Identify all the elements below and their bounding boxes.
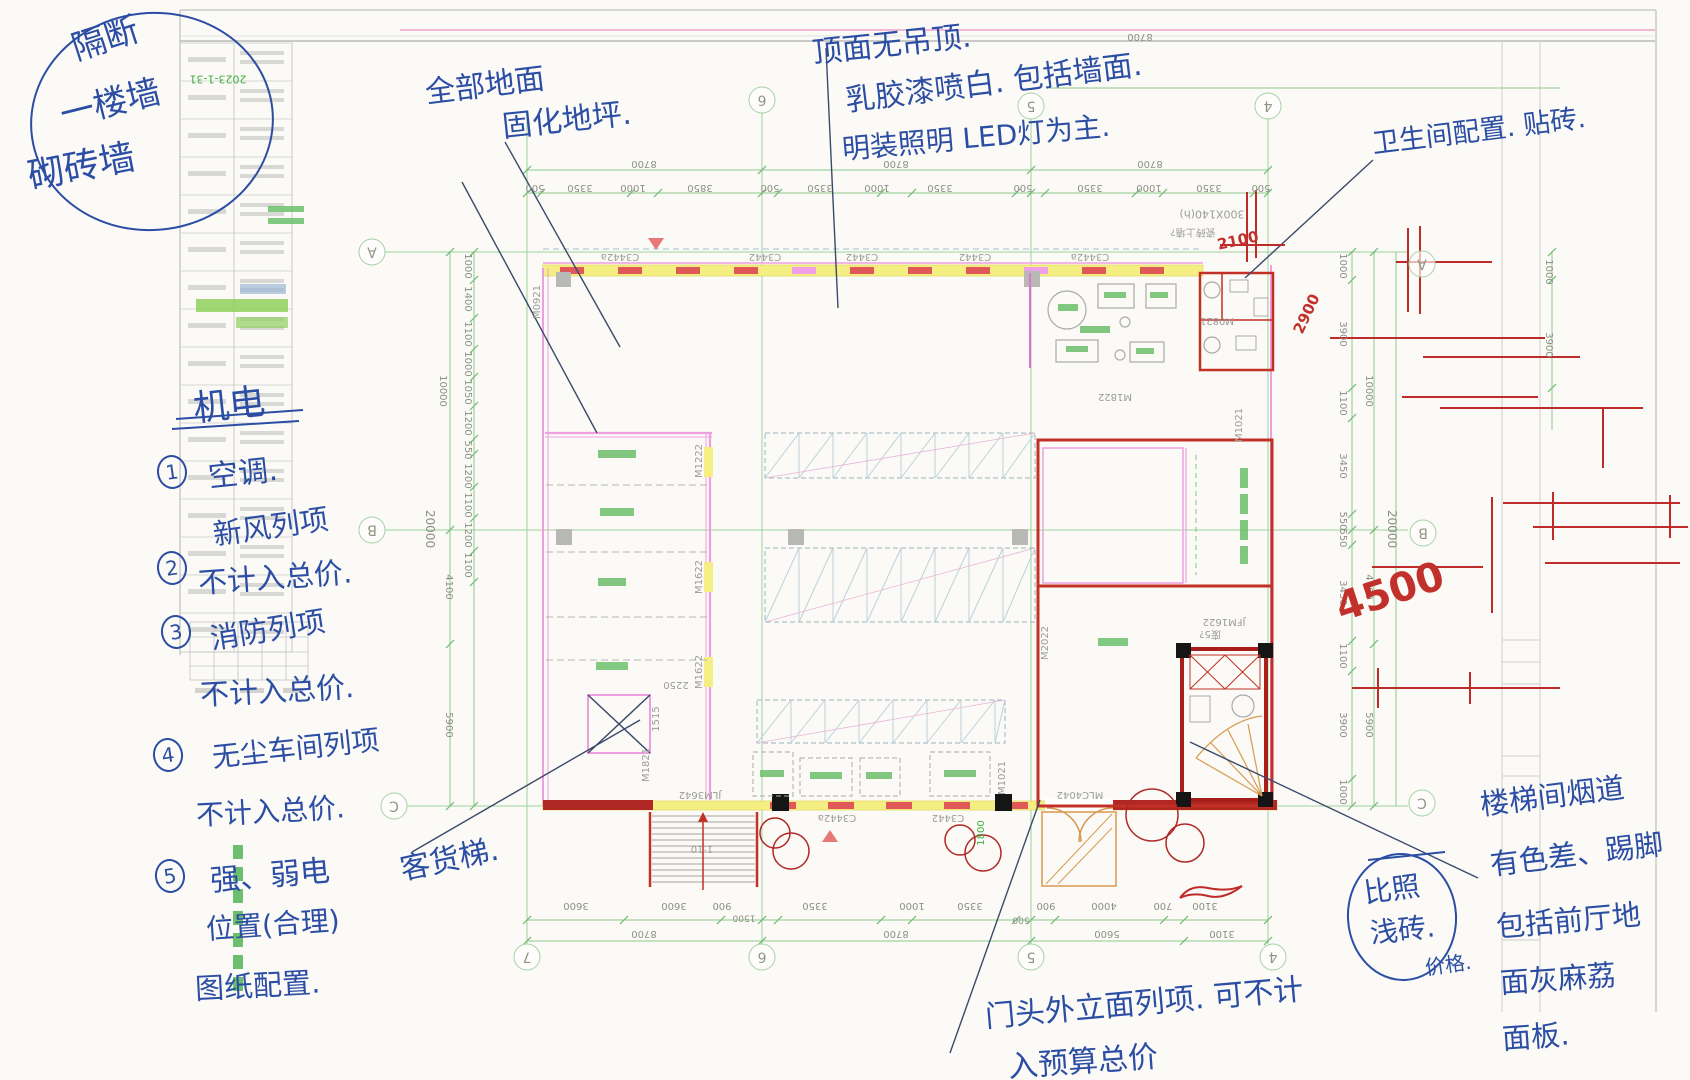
dimension-label: 3850 xyxy=(687,182,712,192)
dimension-label: 3350 xyxy=(567,182,592,192)
dimension-label: 1050 xyxy=(462,379,472,404)
dimension-label: 1000 xyxy=(1543,259,1553,284)
dimension-label: 700 xyxy=(1153,900,1172,910)
cad-label: M1822 xyxy=(1098,391,1132,401)
cad-label: M0921 xyxy=(533,285,543,319)
cad-label: C3442a xyxy=(1071,251,1110,261)
cad-label: MLC4042 xyxy=(1057,789,1104,799)
grid-bubble: 4 xyxy=(1260,944,1287,971)
compare-note-line2: 浅砖. xyxy=(1368,905,1437,952)
dimension-label: 3600 xyxy=(661,900,686,910)
scanned-floor-plan-sheet: 隔断 一楼墙 砌砖墙 全部地面 固化地坪. 顶面无吊顶. 乳胶漆喷白. 包括墙面… xyxy=(0,0,1690,1080)
cad-green-label: 1800 xyxy=(977,820,987,845)
dimension-label: 1100 xyxy=(462,321,472,346)
cad-label: C3442a xyxy=(818,812,857,822)
dimension-label: 1000 xyxy=(1337,253,1347,278)
grid-bubble: C xyxy=(1409,790,1436,817)
cad-label: 2250 xyxy=(663,679,688,689)
grid-bubble: 6 xyxy=(749,944,776,971)
dimension-label: 1000 xyxy=(462,253,472,278)
grid-bubble: B xyxy=(1410,520,1437,547)
dimension-label: 4100 xyxy=(443,574,453,599)
dimension-label: 3350 xyxy=(807,182,832,192)
mech-item1-text: 空调. xyxy=(206,445,280,496)
mech-title: 机电 xyxy=(190,373,267,432)
dimension-label: 3100 xyxy=(1209,928,1234,938)
dimension-label: 8700 xyxy=(1137,158,1162,168)
dimension-label: 1000 xyxy=(462,351,472,376)
dimension-label: 20000 xyxy=(1386,510,1398,548)
cad-label: M1021 xyxy=(998,761,1008,795)
dimension-label: 1000 xyxy=(1136,182,1161,192)
cad-label: 1515 xyxy=(652,706,662,731)
dimension-label: 1200 xyxy=(462,410,472,435)
dimension-label: 3350 xyxy=(802,900,827,910)
grid-bubble: 7 xyxy=(514,944,541,971)
dimension-label: 3450 xyxy=(1337,453,1347,478)
mech-item5-text3: 图纸配置. xyxy=(194,959,321,1007)
dimension-label: 5900 xyxy=(1363,712,1373,737)
cad-label: M1821 xyxy=(642,748,652,782)
dimension-label: 1100 xyxy=(1337,390,1347,415)
dimension-label: 1200 xyxy=(462,522,472,547)
dimension-label: 1000 xyxy=(620,182,645,192)
dimension-label: 3900 xyxy=(1543,332,1553,357)
grid-bubble: C xyxy=(381,793,408,820)
dimension-label: 1200 xyxy=(462,463,472,488)
cad-label: 1:10 xyxy=(691,843,713,853)
dimension-label: 500 xyxy=(760,182,779,192)
cad-label: C3442 xyxy=(846,251,878,261)
grid-bubble: A xyxy=(1409,251,1436,278)
dimension-label: 1400 xyxy=(462,286,472,311)
dimension-label: 4000 xyxy=(1091,900,1116,910)
grid-bubble: 5 xyxy=(1018,93,1045,120)
dimension-label: 20000 xyxy=(424,510,436,548)
dimension-label: 550 xyxy=(462,440,472,459)
stairwell-note-line5: 面板. xyxy=(1501,1011,1571,1058)
dimension-label: 550 xyxy=(1337,528,1347,547)
cad-label: 瓷砖上墙? xyxy=(1170,226,1215,236)
grid-bubble: 5 xyxy=(1018,944,1045,971)
grid-bubble: A xyxy=(359,239,386,266)
cad-label: JLM3642 xyxy=(679,789,722,799)
mech-item3-text2: 不计入总价. xyxy=(199,664,355,714)
dimension-label: 900 xyxy=(1036,900,1055,910)
dimension-label: 3350 xyxy=(957,900,982,910)
cad-label: JFM1622 xyxy=(1203,616,1246,626)
cad-label: C3442 xyxy=(959,251,991,261)
dimension-label: 1100 xyxy=(1337,643,1347,668)
dimension-label: 8700 xyxy=(1127,31,1152,41)
dimension-label: 3900 xyxy=(1337,321,1347,346)
cad-label: 300X140(h) xyxy=(1179,209,1244,220)
dimension-label: 8700 xyxy=(631,928,656,938)
cad-label: M2022 xyxy=(1041,626,1051,660)
dimension-label: 8700 xyxy=(631,158,656,168)
compare-note-line1: 比照 xyxy=(1361,864,1422,911)
cad-label: C3442 xyxy=(749,251,781,261)
cad-label: M1222 xyxy=(695,444,705,478)
dimension-label: 3350 xyxy=(927,182,952,192)
dimension-label: 5600 xyxy=(1094,928,1119,938)
cad-label: M1021 xyxy=(1235,408,1245,442)
dimension-label: 1100 xyxy=(462,552,472,577)
dimension-label: 1000 xyxy=(1337,779,1347,804)
dimension-label: 3900 xyxy=(1337,712,1347,737)
dimension-label: 900 xyxy=(712,900,731,910)
grid-bubble: 4 xyxy=(1255,93,1282,120)
dimension-label: 8700 xyxy=(883,158,908,168)
dimension-label: 3350 xyxy=(1077,182,1102,192)
dimension-label: 500 xyxy=(1012,915,1029,924)
grid-bubble: 6 xyxy=(749,87,776,114)
dimension-label: 500 xyxy=(525,182,544,192)
dimension-label: 10000 xyxy=(1363,375,1373,407)
dimension-label: 1500 xyxy=(733,913,756,922)
cad-green-label: 2023-1-31 xyxy=(190,74,247,85)
dimension-label: 5900 xyxy=(443,712,453,737)
cad-label: C3442a xyxy=(601,251,640,261)
dimension-label: 3600 xyxy=(563,900,588,910)
grid-bubble: B xyxy=(359,517,386,544)
dimension-label: 3350 xyxy=(1196,182,1221,192)
dimension-label: 3100 xyxy=(1192,900,1217,910)
mech-item4-text2: 不计入总价. xyxy=(195,786,346,834)
dimension-label: 500 xyxy=(1013,182,1032,192)
cad-label: 废5? xyxy=(1199,628,1221,638)
dimension-label: 8700 xyxy=(883,928,908,938)
cad-label: M1622 xyxy=(695,655,705,689)
dimension-label: 1000 xyxy=(864,182,889,192)
cad-label: M1622 xyxy=(695,560,705,594)
cad-label: C3442 xyxy=(932,812,964,822)
stairwell-note-line4: 面灰麻荔 xyxy=(1499,952,1618,1002)
cad-label: M0821 xyxy=(1200,315,1234,325)
dimension-label: 10000 xyxy=(437,375,447,407)
dimension-label: 1100 xyxy=(462,492,472,517)
dimension-label: 1000 xyxy=(899,900,924,910)
dimension-label: 500 xyxy=(1251,182,1270,192)
